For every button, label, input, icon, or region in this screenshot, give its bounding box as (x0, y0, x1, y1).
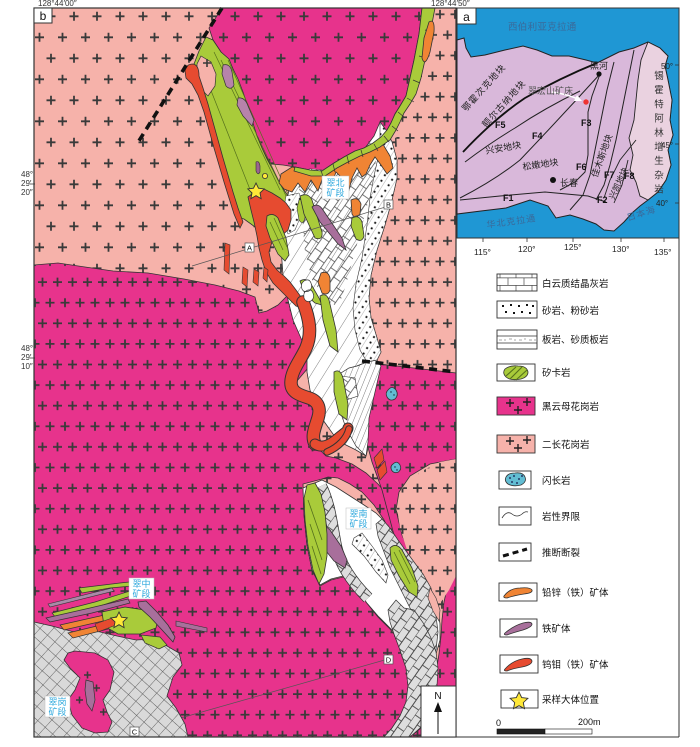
svg-text:120°: 120° (518, 244, 536, 254)
svg-text:矿段: 矿段 (349, 518, 367, 529)
svg-text:F1: F1 (503, 193, 514, 203)
svg-text:推断断裂: 推断断裂 (542, 547, 581, 559)
svg-text:阿: 阿 (654, 114, 664, 125)
svg-text:a: a (463, 10, 470, 24)
svg-text:铁矿体: 铁矿体 (542, 623, 571, 635)
svg-text:0: 0 (496, 718, 501, 728)
svg-text:115°: 115° (474, 247, 491, 257)
svg-text:矿段: 矿段 (48, 706, 66, 717)
svg-text:A: A (247, 244, 252, 253)
svg-text:D: D (386, 656, 392, 665)
svg-text:铅锌（铁）矿体: 铅锌（铁）矿体 (542, 587, 609, 599)
svg-text:黑云母花岗岩: 黑云母花岗岩 (542, 401, 599, 413)
svg-text:翠中: 翠中 (132, 578, 150, 589)
svg-text:翠南: 翠南 (349, 508, 367, 519)
svg-text:128°44′00″: 128°44′00″ (38, 0, 77, 8)
svg-text:杂: 杂 (654, 170, 664, 181)
svg-text:生: 生 (654, 155, 664, 167)
svg-text:F2: F2 (597, 195, 608, 205)
svg-text:板岩、砂质板岩: 板岩、砂质板岩 (542, 334, 609, 346)
svg-text:霍: 霍 (654, 85, 664, 96)
svg-text:F5: F5 (495, 120, 506, 130)
svg-text:二长花岗岩: 二长花岗岩 (542, 439, 590, 451)
svg-text:130°: 130° (612, 244, 630, 254)
svg-text:29′: 29′ (21, 353, 32, 362)
svg-text:林: 林 (654, 127, 664, 139)
svg-text:50°: 50° (661, 62, 673, 71)
svg-text:闪长岩: 闪长岩 (542, 475, 571, 487)
svg-text:N: N (434, 691, 441, 702)
svg-text:矿段: 矿段 (132, 588, 150, 599)
svg-text:翠北: 翠北 (326, 178, 344, 188)
svg-text:特: 特 (654, 98, 664, 110)
svg-text:125°: 125° (564, 242, 582, 252)
svg-text:135°: 135° (654, 247, 672, 257)
svg-text:白云质结晶灰岩: 白云质结晶灰岩 (542, 278, 609, 290)
svg-text:锡: 锡 (654, 70, 664, 82)
svg-text:翠岗: 翠岗 (48, 697, 66, 707)
svg-text:黑河: 黑河 (590, 60, 608, 71)
svg-text:48°: 48° (21, 344, 33, 353)
svg-text:20″: 20″ (21, 188, 33, 197)
svg-text:F4: F4 (532, 131, 543, 141)
svg-text:砂岩、粉砂岩: 砂岩、粉砂岩 (542, 305, 599, 317)
svg-text:b: b (40, 9, 47, 23)
svg-text:矿段: 矿段 (326, 187, 344, 198)
svg-text:翠宏山矿床: 翠宏山矿床 (528, 85, 573, 96)
svg-text:西伯利亚克拉通: 西伯利亚克拉通 (508, 21, 577, 33)
svg-text:10″: 10″ (21, 362, 33, 371)
svg-text:45°: 45° (661, 141, 673, 150)
svg-text:48°: 48° (21, 170, 33, 179)
svg-text:岩性界限: 岩性界限 (542, 511, 581, 523)
svg-text:200m: 200m (578, 717, 601, 727)
svg-text:C: C (132, 728, 138, 737)
svg-text:F7: F7 (604, 170, 615, 180)
svg-text:长春: 长春 (560, 177, 578, 188)
svg-text:128°44′50″: 128°44′50″ (431, 0, 470, 8)
svg-text:钨钼（铁）矿体: 钨钼（铁）矿体 (542, 659, 609, 671)
svg-text:29′: 29′ (21, 179, 32, 188)
svg-text:F8: F8 (624, 171, 635, 181)
svg-text:F3: F3 (581, 118, 592, 128)
svg-text:矽卡岩: 矽卡岩 (542, 367, 571, 379)
svg-text:岩: 岩 (654, 184, 664, 196)
svg-text:B: B (386, 201, 391, 210)
svg-text:F6: F6 (576, 162, 587, 172)
svg-text:采样大体位置: 采样大体位置 (542, 694, 599, 706)
svg-text:40°: 40° (656, 199, 668, 208)
